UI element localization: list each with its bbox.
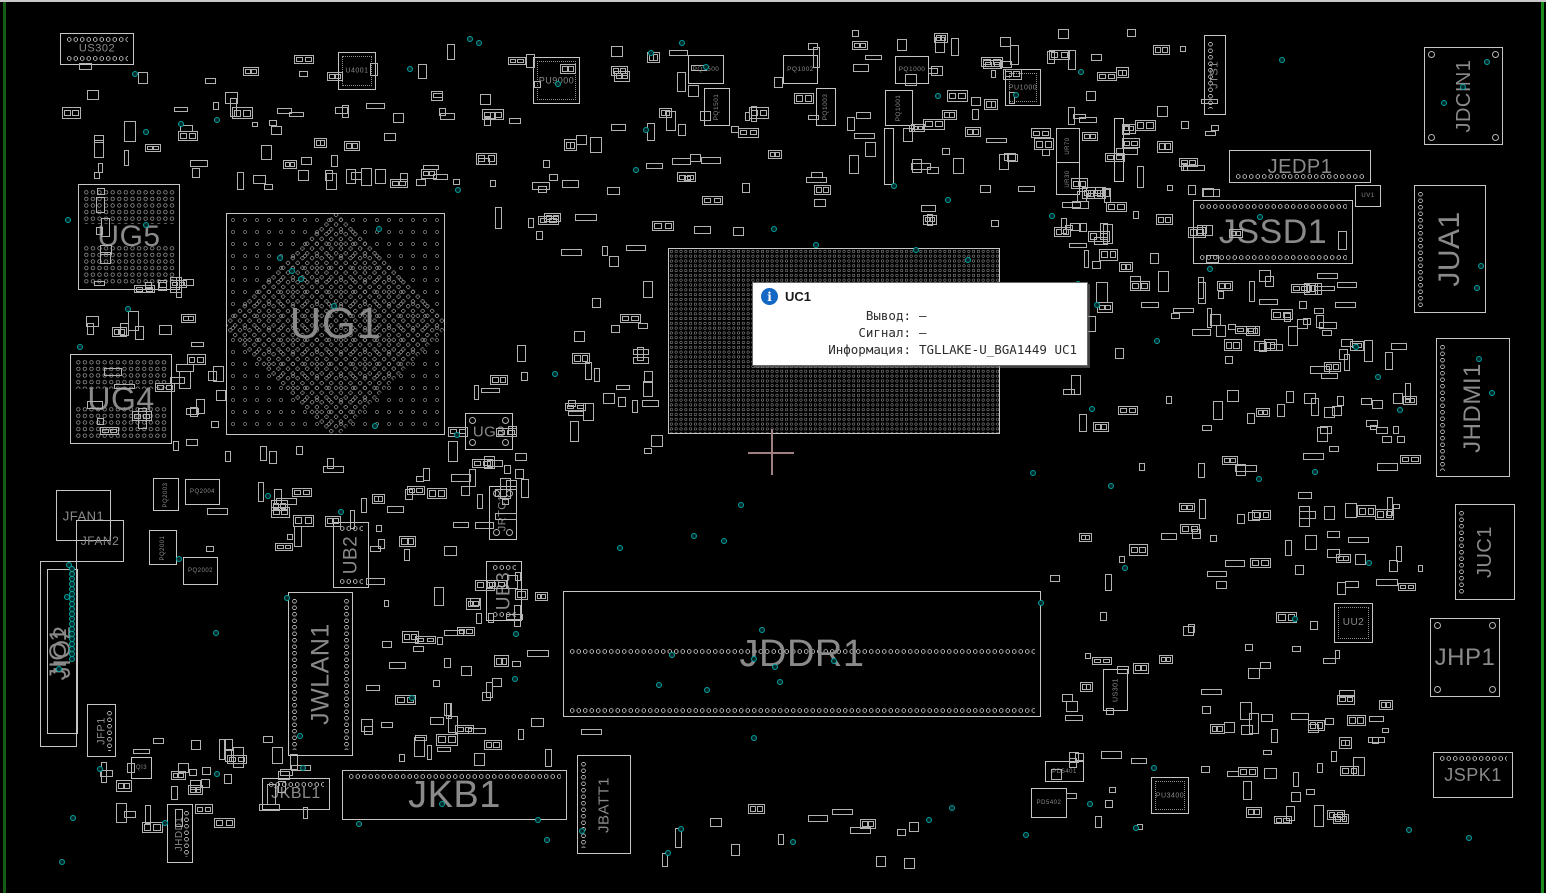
small-part[interactable] bbox=[372, 494, 385, 504]
small-part[interactable] bbox=[1306, 789, 1315, 795]
small-part[interactable] bbox=[854, 133, 876, 138]
small-part[interactable] bbox=[666, 111, 676, 132]
small-part[interactable] bbox=[413, 646, 424, 652]
small-part[interactable] bbox=[444, 630, 463, 637]
test-point[interactable] bbox=[300, 765, 306, 771]
small-part[interactable] bbox=[375, 169, 385, 183]
small-part[interactable] bbox=[1179, 503, 1195, 512]
small-part[interactable] bbox=[474, 385, 479, 399]
component-ug5[interactable]: UG5 bbox=[78, 184, 180, 290]
small-part[interactable] bbox=[581, 729, 602, 734]
small-part[interactable] bbox=[701, 157, 721, 164]
small-part[interactable] bbox=[1201, 99, 1217, 104]
small-part[interactable] bbox=[751, 106, 757, 121]
small-part[interactable] bbox=[847, 117, 855, 131]
small-part[interactable] bbox=[923, 119, 945, 130]
small-part[interactable] bbox=[1201, 766, 1210, 773]
test-point[interactable] bbox=[407, 66, 413, 72]
small-part[interactable] bbox=[1229, 229, 1244, 239]
small-part[interactable] bbox=[453, 179, 461, 185]
component-pu3400[interactable]: PU3400 bbox=[1151, 777, 1189, 814]
small-part[interactable] bbox=[1347, 715, 1366, 726]
small-part[interactable] bbox=[534, 81, 542, 88]
small-part[interactable] bbox=[1119, 556, 1125, 563]
test-point[interactable] bbox=[949, 805, 955, 811]
small-part[interactable] bbox=[1285, 540, 1292, 556]
small-part[interactable] bbox=[1153, 45, 1170, 55]
small-part[interactable] bbox=[1327, 810, 1345, 821]
small-part[interactable] bbox=[326, 173, 336, 189]
small-part[interactable] bbox=[849, 155, 859, 175]
small-part[interactable] bbox=[335, 107, 348, 114]
small-part[interactable] bbox=[174, 107, 188, 112]
small-part[interactable] bbox=[1317, 427, 1328, 443]
small-part[interactable] bbox=[1286, 806, 1295, 821]
small-part[interactable] bbox=[1259, 270, 1271, 282]
test-point[interactable] bbox=[678, 826, 684, 832]
small-part[interactable] bbox=[190, 160, 208, 167]
small-part[interactable] bbox=[1094, 237, 1109, 245]
small-part[interactable] bbox=[477, 494, 482, 509]
small-part[interactable] bbox=[292, 488, 312, 497]
small-part[interactable] bbox=[643, 381, 653, 397]
small-part[interactable] bbox=[1327, 531, 1341, 539]
small-part[interactable] bbox=[603, 393, 616, 405]
small-part[interactable] bbox=[87, 401, 103, 409]
small-part[interactable] bbox=[1254, 341, 1266, 351]
small-part[interactable] bbox=[402, 631, 420, 643]
small-part[interactable] bbox=[808, 815, 828, 822]
component-juc1[interactable]: JUC1 bbox=[1455, 504, 1515, 600]
small-part[interactable] bbox=[155, 383, 175, 392]
small-part[interactable] bbox=[1337, 695, 1355, 705]
test-point[interactable] bbox=[891, 183, 897, 189]
small-part[interactable] bbox=[207, 508, 228, 515]
small-part[interactable] bbox=[1393, 426, 1398, 434]
small-part[interactable] bbox=[526, 54, 535, 68]
small-part[interactable] bbox=[314, 138, 328, 149]
small-part[interactable] bbox=[433, 680, 440, 687]
small-part[interactable] bbox=[178, 131, 198, 142]
small-part[interactable] bbox=[1210, 724, 1226, 734]
small-part[interactable] bbox=[484, 112, 496, 119]
small-part[interactable] bbox=[1216, 581, 1227, 590]
test-point[interactable] bbox=[59, 859, 65, 865]
small-part[interactable] bbox=[1284, 313, 1290, 322]
small-part[interactable] bbox=[733, 227, 743, 237]
small-part[interactable] bbox=[1116, 67, 1130, 78]
component-pd5402[interactable]: PD5402 bbox=[1031, 788, 1067, 818]
small-part[interactable] bbox=[490, 180, 496, 187]
small-part[interactable] bbox=[1099, 249, 1118, 261]
small-part[interactable] bbox=[1322, 330, 1332, 336]
small-part[interactable] bbox=[1105, 800, 1113, 808]
small-part[interactable] bbox=[145, 144, 162, 152]
small-part[interactable] bbox=[609, 256, 619, 267]
small-part[interactable] bbox=[632, 400, 637, 413]
small-part[interactable] bbox=[440, 113, 455, 121]
small-part[interactable] bbox=[1157, 106, 1168, 117]
small-part[interactable] bbox=[301, 157, 312, 165]
small-part[interactable] bbox=[590, 137, 602, 153]
small-part[interactable] bbox=[1097, 72, 1117, 81]
small-part[interactable] bbox=[611, 124, 626, 132]
small-part[interactable] bbox=[678, 124, 686, 136]
small-part[interactable] bbox=[1245, 644, 1253, 652]
small-part[interactable] bbox=[1171, 313, 1180, 318]
small-part[interactable] bbox=[515, 589, 529, 600]
small-part[interactable] bbox=[299, 71, 308, 77]
component-ug1[interactable]: UG1 bbox=[226, 213, 445, 435]
small-part[interactable] bbox=[808, 115, 819, 120]
small-part[interactable] bbox=[298, 170, 309, 181]
small-part[interactable] bbox=[474, 753, 484, 766]
small-part[interactable] bbox=[620, 314, 641, 322]
small-part[interactable] bbox=[1385, 352, 1393, 370]
small-part[interactable] bbox=[331, 155, 338, 167]
small-part[interactable] bbox=[1337, 282, 1357, 288]
small-part[interactable] bbox=[227, 755, 247, 763]
small-part[interactable] bbox=[1249, 281, 1256, 302]
test-point[interactable] bbox=[513, 631, 519, 637]
test-point[interactable] bbox=[284, 595, 290, 601]
small-part[interactable] bbox=[527, 650, 549, 657]
small-part[interactable] bbox=[261, 145, 272, 159]
small-part[interactable] bbox=[296, 446, 303, 455]
small-part[interactable] bbox=[278, 781, 287, 793]
small-part[interactable] bbox=[1051, 769, 1063, 780]
small-part[interactable] bbox=[294, 55, 314, 64]
small-part[interactable] bbox=[643, 281, 653, 298]
small-part[interactable] bbox=[225, 451, 230, 462]
small-part[interactable] bbox=[1246, 326, 1260, 336]
small-part[interactable] bbox=[518, 729, 524, 740]
test-point[interactable] bbox=[544, 837, 550, 843]
small-part[interactable] bbox=[387, 506, 404, 513]
small-part[interactable] bbox=[97, 188, 105, 195]
small-part[interactable] bbox=[1288, 326, 1298, 346]
small-part[interactable] bbox=[1082, 132, 1097, 141]
small-part[interactable] bbox=[1393, 393, 1403, 404]
small-part[interactable] bbox=[482, 692, 490, 701]
small-part[interactable] bbox=[1369, 716, 1384, 722]
small-part[interactable] bbox=[1077, 191, 1087, 203]
small-part[interactable] bbox=[252, 122, 258, 128]
small-part[interactable] bbox=[173, 441, 179, 451]
small-part[interactable] bbox=[1092, 657, 1111, 665]
small-part[interactable] bbox=[1299, 301, 1307, 308]
small-part[interactable] bbox=[1372, 400, 1383, 409]
small-part[interactable] bbox=[361, 719, 372, 733]
small-part[interactable] bbox=[176, 277, 182, 298]
small-part[interactable] bbox=[1179, 158, 1198, 167]
small-part[interactable] bbox=[1192, 329, 1210, 335]
small-part[interactable] bbox=[453, 522, 468, 528]
small-part[interactable] bbox=[1092, 261, 1101, 269]
component-jhdmi1[interactable]: JHDMI1 bbox=[1436, 338, 1510, 477]
small-part[interactable] bbox=[1106, 202, 1127, 212]
test-point[interactable] bbox=[1441, 100, 1447, 106]
small-part[interactable] bbox=[562, 180, 579, 188]
small-part[interactable] bbox=[492, 678, 502, 687]
small-part[interactable] bbox=[585, 362, 591, 380]
small-part[interactable] bbox=[495, 489, 507, 498]
small-part[interactable] bbox=[384, 133, 396, 141]
small-part[interactable] bbox=[213, 102, 219, 111]
test-point[interactable] bbox=[143, 222, 149, 228]
small-part[interactable] bbox=[1376, 427, 1387, 434]
test-point[interactable] bbox=[56, 666, 62, 672]
component-ur70[interactable]: UR70 bbox=[1056, 128, 1080, 163]
small-part[interactable] bbox=[1058, 29, 1068, 39]
component-pq1001[interactable]: PQ1001 bbox=[885, 90, 913, 126]
small-part[interactable] bbox=[271, 507, 291, 518]
small-part[interactable] bbox=[637, 347, 644, 361]
small-part[interactable] bbox=[399, 754, 405, 762]
small-part[interactable] bbox=[293, 515, 314, 527]
test-point[interactable] bbox=[1366, 560, 1372, 566]
small-part[interactable] bbox=[461, 486, 470, 496]
test-point[interactable] bbox=[1312, 469, 1318, 475]
small-part[interactable] bbox=[1117, 666, 1129, 674]
small-part[interactable] bbox=[1100, 612, 1107, 621]
small-part[interactable] bbox=[1217, 281, 1233, 291]
small-part[interactable] bbox=[1161, 533, 1177, 539]
small-part[interactable] bbox=[1018, 186, 1034, 192]
small-part[interactable] bbox=[1263, 750, 1272, 755]
small-part[interactable] bbox=[1066, 793, 1076, 799]
small-part[interactable] bbox=[366, 685, 381, 691]
small-part[interactable] bbox=[1007, 154, 1019, 162]
small-part[interactable] bbox=[283, 160, 297, 169]
small-part[interactable] bbox=[472, 459, 492, 469]
small-part[interactable] bbox=[1316, 315, 1323, 328]
small-part[interactable] bbox=[897, 39, 906, 50]
small-part[interactable] bbox=[909, 822, 919, 832]
test-point[interactable] bbox=[125, 306, 131, 312]
small-part[interactable] bbox=[461, 666, 472, 677]
small-part[interactable] bbox=[484, 740, 502, 750]
small-part[interactable] bbox=[1062, 202, 1081, 209]
test-point[interactable] bbox=[1474, 285, 1480, 291]
small-part[interactable] bbox=[481, 388, 500, 393]
small-part[interactable] bbox=[214, 818, 235, 828]
small-part[interactable] bbox=[984, 99, 997, 111]
small-part[interactable] bbox=[514, 605, 521, 626]
component-jdcin1[interactable]: JDCIN1 bbox=[1424, 47, 1503, 145]
component-uv1[interactable]: UV1 bbox=[1355, 185, 1381, 207]
small-part[interactable] bbox=[277, 108, 292, 114]
small-part[interactable] bbox=[415, 735, 427, 741]
small-part[interactable] bbox=[416, 476, 424, 482]
small-part[interactable] bbox=[852, 30, 858, 37]
small-part[interactable] bbox=[427, 745, 432, 760]
small-part[interactable] bbox=[814, 199, 825, 207]
small-part[interactable] bbox=[1101, 751, 1122, 758]
small-part[interactable] bbox=[1069, 243, 1087, 248]
small-part[interactable] bbox=[710, 818, 723, 827]
small-part[interactable] bbox=[175, 809, 183, 827]
small-part[interactable] bbox=[1291, 792, 1301, 802]
small-part[interactable] bbox=[444, 658, 451, 668]
small-part[interactable] bbox=[532, 182, 551, 190]
small-part[interactable] bbox=[1291, 284, 1310, 294]
small-part[interactable] bbox=[405, 489, 413, 500]
small-part[interactable] bbox=[1084, 250, 1090, 268]
small-part[interactable] bbox=[745, 112, 750, 121]
small-part[interactable] bbox=[376, 525, 382, 532]
small-part[interactable] bbox=[607, 187, 619, 194]
small-part[interactable] bbox=[611, 66, 628, 76]
small-part[interactable] bbox=[206, 546, 214, 553]
small-part[interactable] bbox=[271, 126, 281, 134]
small-part[interactable] bbox=[1086, 91, 1097, 101]
small-part[interactable] bbox=[986, 138, 1007, 143]
small-part[interactable] bbox=[327, 458, 334, 469]
test-point[interactable] bbox=[97, 766, 103, 772]
test-point[interactable] bbox=[935, 93, 941, 99]
small-part[interactable] bbox=[290, 754, 298, 771]
small-part[interactable] bbox=[327, 72, 343, 82]
small-part[interactable] bbox=[1127, 29, 1136, 37]
small-part[interactable] bbox=[1202, 225, 1213, 235]
small-part[interactable] bbox=[538, 216, 559, 225]
small-part[interactable] bbox=[1050, 575, 1061, 582]
small-part[interactable] bbox=[390, 179, 407, 187]
test-point[interactable] bbox=[338, 509, 344, 515]
test-point[interactable] bbox=[945, 197, 951, 203]
small-part[interactable] bbox=[1105, 153, 1125, 162]
small-part[interactable] bbox=[1345, 581, 1360, 588]
small-part[interactable] bbox=[216, 390, 226, 400]
small-part[interactable] bbox=[1317, 763, 1323, 774]
test-point[interactable] bbox=[1154, 338, 1160, 344]
small-part[interactable] bbox=[669, 50, 688, 56]
small-part[interactable] bbox=[1133, 211, 1139, 219]
small-part[interactable] bbox=[1241, 725, 1253, 735]
small-part[interactable] bbox=[253, 175, 266, 185]
small-part[interactable] bbox=[202, 767, 211, 775]
test-point[interactable] bbox=[512, 676, 518, 682]
small-part[interactable] bbox=[504, 465, 511, 475]
small-part[interactable] bbox=[272, 747, 283, 763]
small-part[interactable] bbox=[384, 600, 389, 608]
small-part[interactable] bbox=[1181, 121, 1189, 129]
small-part[interactable] bbox=[1207, 571, 1227, 577]
small-part[interactable] bbox=[278, 771, 290, 779]
small-part[interactable] bbox=[1310, 366, 1331, 374]
small-part[interactable] bbox=[190, 407, 198, 418]
component-jspk1[interactable]: JSPK1 bbox=[1433, 752, 1513, 798]
small-part[interactable] bbox=[611, 46, 623, 56]
component-outline[interactable] bbox=[884, 128, 894, 185]
test-point[interactable] bbox=[1087, 801, 1093, 807]
small-part[interactable] bbox=[1259, 299, 1278, 305]
component-ub2[interactable]: UB2 bbox=[333, 522, 369, 588]
small-part[interactable] bbox=[361, 498, 367, 513]
test-point[interactable] bbox=[467, 36, 473, 42]
small-part[interactable] bbox=[444, 546, 457, 556]
small-part[interactable] bbox=[189, 769, 198, 776]
test-point[interactable] bbox=[1478, 263, 1484, 269]
small-part[interactable] bbox=[814, 185, 831, 194]
test-point[interactable] bbox=[665, 850, 671, 856]
test-point[interactable] bbox=[476, 40, 482, 46]
test-point[interactable] bbox=[1257, 214, 1263, 220]
small-part[interactable] bbox=[1293, 772, 1298, 788]
small-part[interactable] bbox=[509, 118, 521, 124]
small-part[interactable] bbox=[972, 109, 979, 120]
small-part[interactable] bbox=[515, 453, 527, 462]
small-part[interactable] bbox=[1314, 308, 1325, 314]
small-part[interactable] bbox=[1065, 715, 1083, 721]
test-point[interactable] bbox=[1089, 406, 1095, 412]
small-part[interactable] bbox=[611, 325, 619, 333]
small-part[interactable] bbox=[134, 285, 155, 293]
small-part[interactable] bbox=[1397, 436, 1405, 443]
small-part[interactable] bbox=[116, 780, 132, 792]
small-part[interactable] bbox=[1133, 663, 1149, 674]
test-point[interactable] bbox=[454, 432, 460, 438]
small-part[interactable] bbox=[1376, 579, 1397, 587]
small-part[interactable] bbox=[470, 598, 480, 606]
test-point[interactable] bbox=[691, 533, 697, 539]
small-part[interactable] bbox=[536, 231, 543, 239]
test-point[interactable] bbox=[1094, 302, 1100, 308]
small-part[interactable] bbox=[1201, 689, 1221, 695]
small-part[interactable] bbox=[399, 536, 416, 547]
test-point[interactable] bbox=[143, 129, 149, 135]
small-part[interactable] bbox=[942, 148, 950, 155]
small-part[interactable] bbox=[287, 534, 294, 540]
small-part[interactable] bbox=[1071, 375, 1081, 396]
small-part[interactable] bbox=[243, 67, 259, 76]
small-part[interactable] bbox=[1271, 729, 1277, 743]
test-point[interactable] bbox=[535, 817, 541, 823]
small-part[interactable] bbox=[912, 159, 921, 173]
small-part[interactable] bbox=[1246, 807, 1262, 818]
small-part[interactable] bbox=[677, 72, 686, 91]
test-point[interactable] bbox=[455, 187, 461, 193]
small-part[interactable] bbox=[1109, 787, 1115, 793]
small-part[interactable] bbox=[688, 85, 700, 97]
small-part[interactable] bbox=[1418, 565, 1423, 572]
small-part[interactable] bbox=[1131, 758, 1147, 764]
small-part[interactable] bbox=[1122, 138, 1140, 148]
small-part[interactable] bbox=[1066, 701, 1079, 713]
small-part[interactable] bbox=[496, 428, 517, 436]
small-part[interactable] bbox=[1405, 383, 1410, 400]
small-part[interactable] bbox=[181, 314, 196, 323]
small-part[interactable] bbox=[1158, 271, 1169, 292]
small-part[interactable] bbox=[87, 90, 99, 100]
test-point[interactable] bbox=[214, 771, 220, 777]
small-part[interactable] bbox=[1210, 535, 1217, 542]
test-point[interactable] bbox=[751, 735, 757, 741]
test-point[interactable] bbox=[356, 821, 362, 827]
small-part[interactable] bbox=[128, 311, 138, 332]
small-part[interactable] bbox=[124, 150, 129, 166]
small-part[interactable] bbox=[1225, 560, 1245, 566]
test-point[interactable] bbox=[648, 50, 654, 56]
small-part[interactable] bbox=[1305, 535, 1316, 550]
test-point[interactable] bbox=[926, 817, 932, 823]
small-part[interactable] bbox=[1314, 805, 1324, 827]
small-part[interactable] bbox=[1238, 767, 1257, 777]
small-part[interactable] bbox=[389, 662, 407, 669]
test-point[interactable] bbox=[1030, 470, 1036, 476]
small-part[interactable] bbox=[1198, 277, 1204, 299]
